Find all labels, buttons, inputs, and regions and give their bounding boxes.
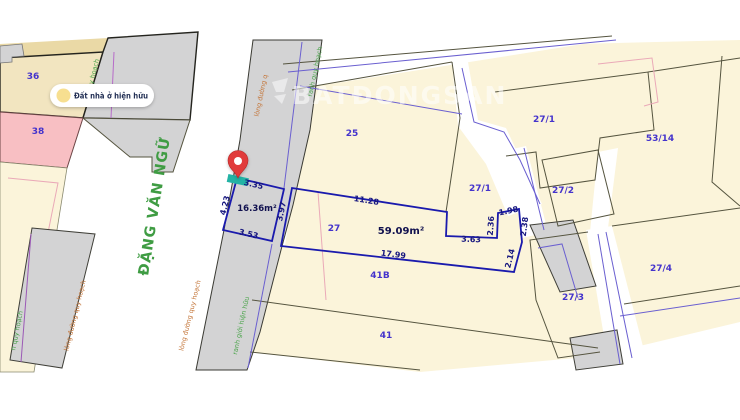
dim-main-step-left: 2.36 bbox=[486, 215, 496, 236]
parcel-label-273: 27/3 bbox=[562, 293, 584, 303]
parcel-label-36: 36 bbox=[27, 72, 40, 82]
map-canvas: BATĐONGSAN 36 38 25 27 27/1 27/1 27/2 53… bbox=[0, 0, 740, 420]
parcel-label-274: 27/4 bbox=[650, 264, 672, 274]
legend-label: Đất nhà ở hiện hữu bbox=[74, 91, 148, 101]
parcel-label-41b: 41B bbox=[370, 271, 390, 281]
cadastral-map: BATĐONGSAN 36 38 25 27 27/1 27/1 27/2 53… bbox=[0, 0, 740, 420]
annotation-longduong-2: lòng đường quy hoạch bbox=[177, 279, 202, 351]
dim-main-inner: 3.63 bbox=[461, 235, 481, 245]
parcel-label-271b: 27/1 bbox=[469, 184, 491, 194]
parcel-38-shape bbox=[0, 112, 83, 168]
parcel-label-271a: 27/1 bbox=[533, 115, 555, 125]
parcel-label-272: 27/2 bbox=[552, 186, 574, 196]
parcel-label-38: 38 bbox=[32, 127, 45, 137]
parcel-label-25: 25 bbox=[346, 129, 359, 139]
parcel-label-41: 41 bbox=[380, 331, 393, 341]
pin-hole bbox=[234, 157, 242, 165]
watermark-text: BATĐONGSAN bbox=[292, 81, 507, 110]
area-main-lot: 59.09m² bbox=[378, 226, 424, 237]
area-small-lot: 16.36m² bbox=[237, 204, 277, 214]
parcel-label-5314: 53/14 bbox=[646, 134, 674, 144]
parcel-label-27: 27 bbox=[328, 224, 341, 234]
road-block-top-left-2 bbox=[83, 118, 190, 172]
legend-chip: Đất nhà ở hiện hữu bbox=[50, 84, 154, 107]
legend-dot-icon bbox=[57, 89, 71, 103]
